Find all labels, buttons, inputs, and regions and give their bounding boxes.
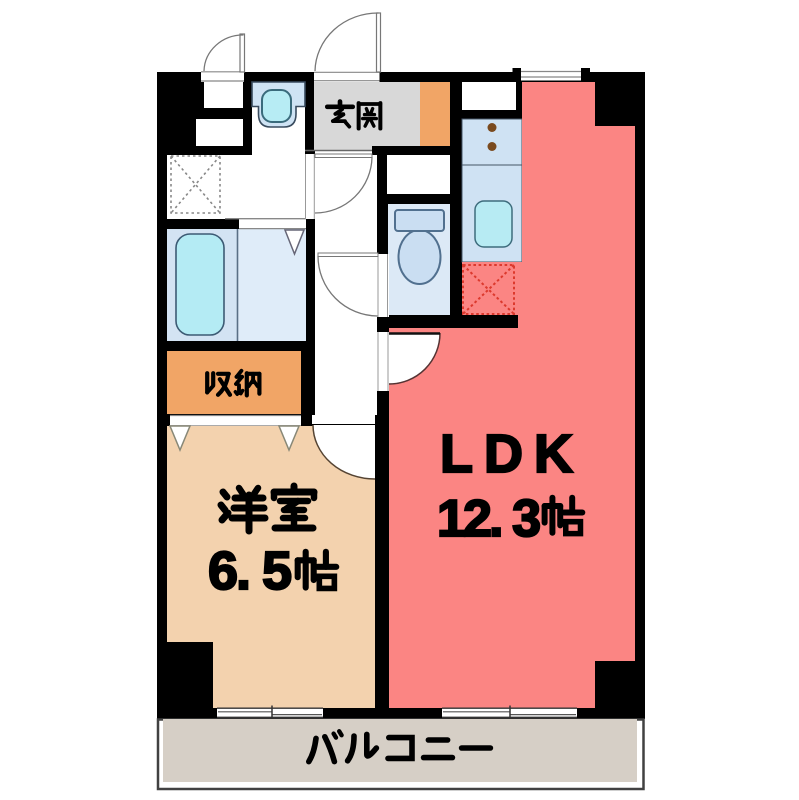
svg-text:12. 3: 12. 3 — [437, 490, 541, 548]
svg-text:6. 5: 6. 5 — [208, 541, 292, 601]
svg-text:LDK: LDK — [440, 424, 584, 484]
